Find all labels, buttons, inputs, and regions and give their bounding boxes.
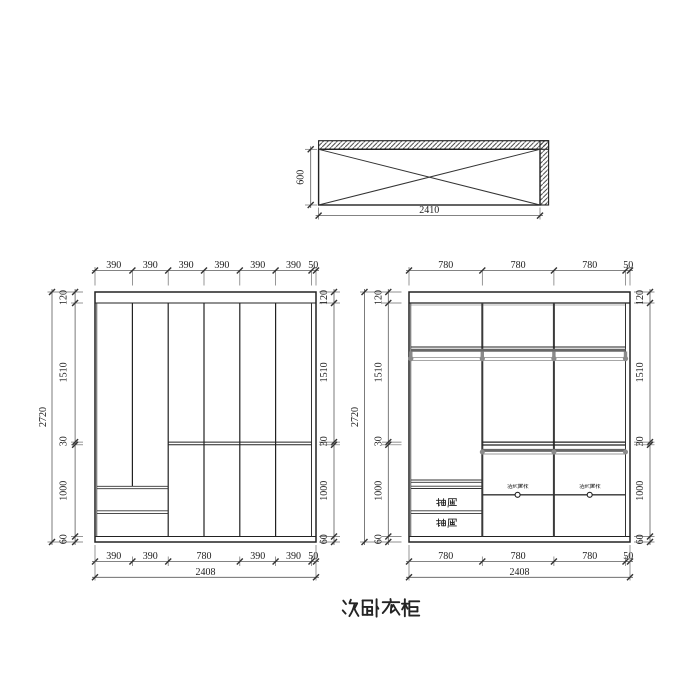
svg-text:1510: 1510: [319, 362, 330, 382]
svg-text:1000: 1000: [319, 481, 330, 501]
svg-text:60: 60: [635, 534, 646, 544]
svg-text:390: 390: [286, 260, 301, 271]
svg-text:390: 390: [106, 551, 121, 562]
svg-text:780: 780: [511, 260, 526, 271]
svg-text:2408: 2408: [510, 567, 530, 578]
svg-text:60: 60: [373, 534, 384, 544]
svg-text:50: 50: [623, 551, 633, 562]
svg-text:390: 390: [286, 551, 301, 562]
svg-text:2408: 2408: [196, 567, 216, 578]
svg-text:120: 120: [373, 290, 384, 305]
svg-text:600: 600: [295, 170, 306, 185]
svg-text:390: 390: [143, 551, 158, 562]
svg-text:50: 50: [308, 260, 318, 271]
svg-text:30: 30: [635, 436, 646, 446]
svg-text:60: 60: [59, 534, 70, 544]
svg-text:120: 120: [59, 290, 70, 305]
svg-text:2410: 2410: [419, 205, 439, 216]
svg-text:50: 50: [308, 551, 318, 562]
svg-text:390: 390: [250, 260, 265, 271]
svg-text:2720: 2720: [350, 407, 361, 427]
svg-text:60: 60: [319, 534, 330, 544]
svg-text:1510: 1510: [59, 362, 70, 382]
svg-text:780: 780: [438, 260, 453, 271]
svg-text:390: 390: [214, 260, 229, 271]
svg-text:780: 780: [582, 551, 597, 562]
svg-text:1510: 1510: [373, 362, 384, 382]
svg-text:1000: 1000: [59, 481, 70, 501]
svg-text:390: 390: [106, 260, 121, 271]
svg-text:120: 120: [319, 290, 330, 305]
svg-text:30: 30: [319, 436, 330, 446]
svg-text:120: 120: [635, 290, 646, 305]
svg-text:390: 390: [179, 260, 194, 271]
svg-text:50: 50: [623, 260, 633, 271]
svg-text:780: 780: [438, 551, 453, 562]
svg-text:780: 780: [197, 551, 212, 562]
svg-text:390: 390: [143, 260, 158, 271]
svg-text:780: 780: [511, 551, 526, 562]
svg-text:1510: 1510: [635, 362, 646, 382]
svg-text:780: 780: [582, 260, 597, 271]
svg-text:1000: 1000: [635, 481, 646, 501]
svg-text:30: 30: [373, 436, 384, 446]
svg-text:390: 390: [250, 551, 265, 562]
svg-text:30: 30: [59, 436, 70, 446]
svg-text:1000: 1000: [373, 481, 384, 501]
svg-text:2720: 2720: [38, 407, 49, 427]
